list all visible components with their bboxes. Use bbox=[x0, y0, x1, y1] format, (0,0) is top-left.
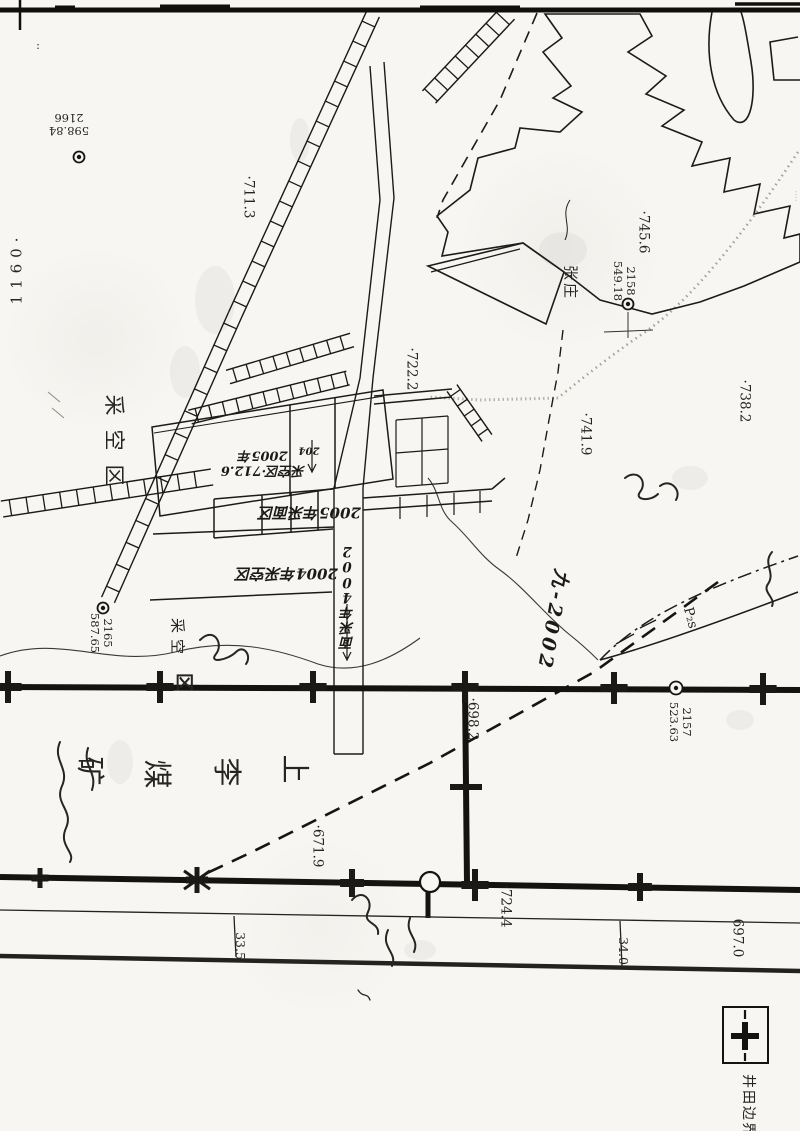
northeast-grid bbox=[396, 416, 448, 487]
main-incline-upper bbox=[229, 11, 380, 318]
h2-cross-3 bbox=[340, 869, 364, 897]
survey-point-2157 bbox=[670, 682, 683, 695]
h2-cross-2 bbox=[184, 867, 210, 893]
scanned-mine-map-page: 1160·:598.8421662158549.182165587.652157… bbox=[0, 0, 800, 1131]
panel-band-1 bbox=[188, 371, 349, 424]
survey-point-2158 bbox=[623, 299, 634, 310]
dashed-boundary bbox=[205, 582, 718, 874]
h1-cross-6 bbox=[749, 673, 776, 705]
legend-cross-symbol bbox=[731, 1022, 759, 1050]
field-boundary-lines bbox=[0, 687, 800, 918]
survey-point-2165 bbox=[98, 603, 109, 614]
legend-box bbox=[723, 1007, 768, 1063]
main-incline-lower bbox=[102, 312, 242, 603]
dimension-lines bbox=[0, 910, 800, 971]
panel-arrow bbox=[308, 440, 316, 472]
h1-cross-1 bbox=[0, 671, 22, 703]
left-horizontal-roadway bbox=[1, 469, 213, 517]
northeast-roadway bbox=[447, 385, 492, 442]
map-borders bbox=[0, 0, 800, 30]
goaf-2004-band bbox=[150, 527, 334, 600]
panel-band-2 bbox=[226, 333, 354, 383]
open-circle-junction bbox=[420, 872, 440, 892]
village-south-dashed bbox=[516, 330, 563, 558]
mining-panels bbox=[150, 390, 505, 660]
contour-line bbox=[0, 478, 598, 668]
village-outline bbox=[428, 12, 800, 558]
narrow-lane bbox=[334, 62, 452, 754]
survey-point-2166 bbox=[74, 152, 85, 163]
northeast-box bbox=[770, 37, 800, 80]
scan-smudges bbox=[107, 118, 754, 960]
h1-cross-3 bbox=[299, 671, 326, 703]
map-canvas bbox=[0, 0, 800, 1131]
h1-cross-2 bbox=[146, 671, 173, 703]
h2-cross-5 bbox=[628, 873, 652, 901]
column-arrow bbox=[343, 604, 351, 660]
h1-cross-4 bbox=[451, 671, 478, 703]
field-boundary-line-lower bbox=[0, 877, 800, 890]
dotted-slope-line bbox=[48, 152, 798, 418]
p2s-lens bbox=[600, 556, 798, 660]
h2-cross-1 bbox=[32, 868, 49, 888]
pond-shape bbox=[709, 12, 753, 122]
survey-leader-lines bbox=[604, 312, 653, 338]
village-dashed-edge bbox=[437, 13, 537, 218]
panel-parallelogram bbox=[152, 390, 393, 516]
top-right-roadway bbox=[422, 7, 514, 103]
h1-cross-5 bbox=[600, 672, 627, 704]
panel-row-right bbox=[363, 478, 505, 510]
